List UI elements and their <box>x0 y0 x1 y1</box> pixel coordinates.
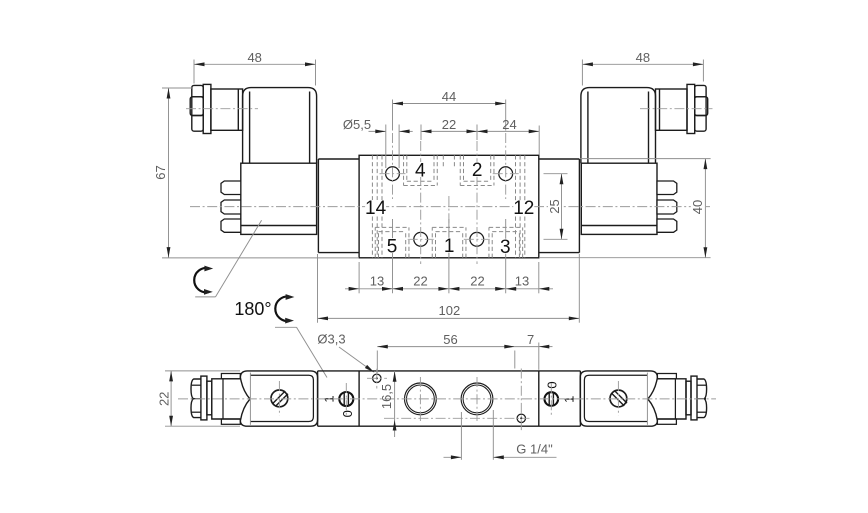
svg-text:1: 1 <box>444 236 455 257</box>
svg-text:44: 44 <box>442 89 456 104</box>
svg-text:102: 102 <box>439 303 461 318</box>
svg-text:24: 24 <box>502 117 516 132</box>
svg-text:G 1/4": G 1/4" <box>516 442 553 457</box>
svg-text:22: 22 <box>413 273 427 288</box>
svg-text:13: 13 <box>515 273 529 288</box>
svg-text:0: 0 <box>340 410 355 417</box>
svg-text:67: 67 <box>153 165 168 179</box>
svg-text:56: 56 <box>443 332 457 347</box>
svg-text:180°: 180° <box>234 299 271 319</box>
svg-text:2: 2 <box>472 160 483 181</box>
svg-text:12: 12 <box>513 198 534 219</box>
svg-text:7: 7 <box>527 332 534 347</box>
svg-text:Ø3,3: Ø3,3 <box>317 332 345 347</box>
svg-text:48: 48 <box>636 50 650 65</box>
svg-text:0: 0 <box>545 381 560 388</box>
svg-text:16,5: 16,5 <box>379 384 394 409</box>
svg-text:25: 25 <box>547 199 562 213</box>
svg-text:3: 3 <box>500 237 511 258</box>
svg-text:22: 22 <box>470 273 484 288</box>
svg-text:22: 22 <box>442 117 456 132</box>
svg-text:Ø5,5: Ø5,5 <box>343 117 371 132</box>
svg-text:13: 13 <box>370 273 384 288</box>
svg-text:5: 5 <box>387 237 398 258</box>
svg-text:14: 14 <box>365 198 387 219</box>
svg-text:48: 48 <box>247 50 261 65</box>
svg-text:22: 22 <box>157 392 172 406</box>
svg-text:40: 40 <box>690 200 705 214</box>
svg-text:4: 4 <box>415 160 426 181</box>
